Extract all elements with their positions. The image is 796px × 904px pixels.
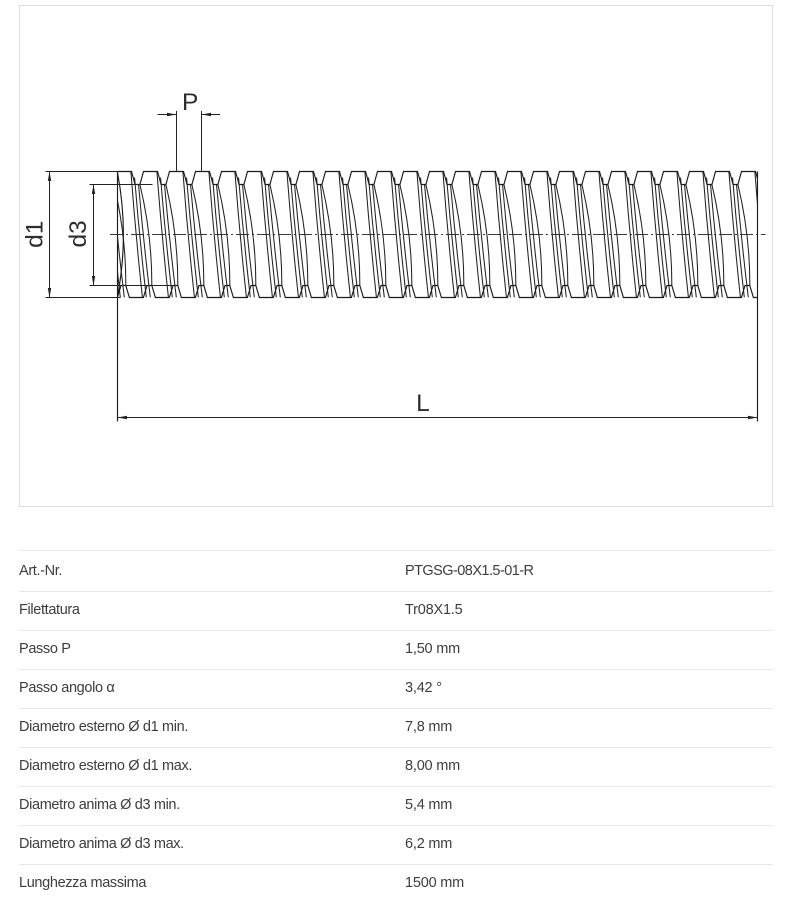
svg-text:d3: d3 — [65, 220, 92, 247]
svg-text:d1: d1 — [21, 221, 48, 248]
svg-text:P: P — [182, 89, 198, 116]
svg-text:L: L — [416, 390, 430, 417]
